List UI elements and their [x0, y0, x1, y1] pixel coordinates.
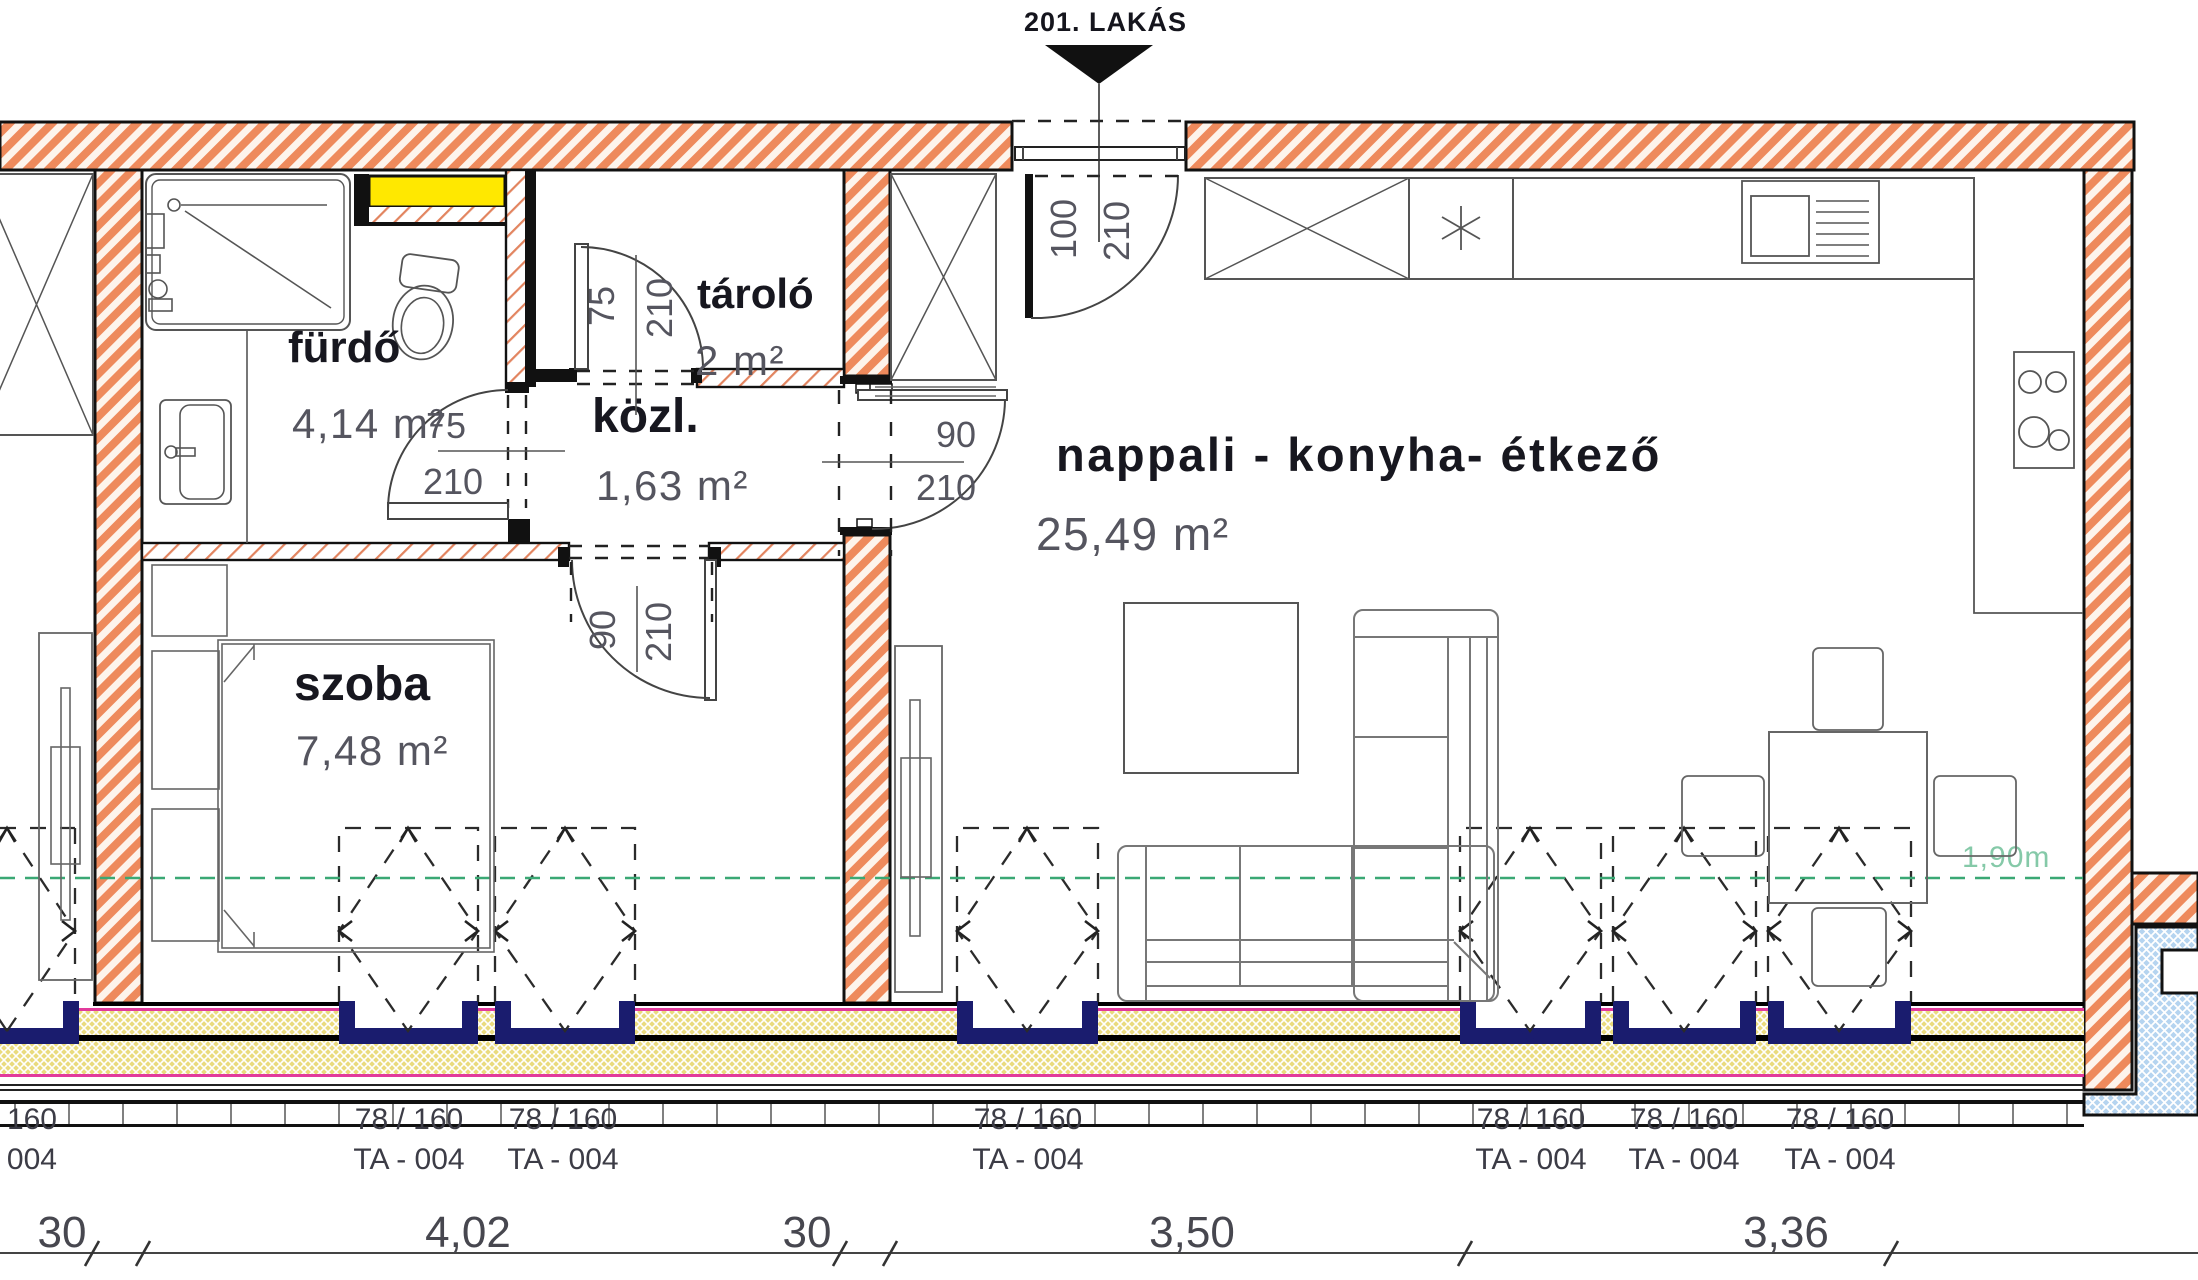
svg-text:4,14 m²: 4,14 m²: [292, 400, 445, 447]
svg-text:TA - 004: TA - 004: [1628, 1143, 1739, 1176]
svg-text:tároló: tároló: [697, 270, 814, 317]
svg-text:210: 210: [916, 467, 976, 508]
svg-text:közl.: közl.: [592, 390, 699, 443]
svg-text:TA - 004: TA - 004: [353, 1143, 464, 1176]
svg-text:210: 210: [638, 602, 679, 662]
svg-text:78 / 160: 78 / 160: [509, 1103, 617, 1136]
svg-text:A - 004: A - 004: [0, 1143, 57, 1176]
svg-text:30: 30: [38, 1208, 87, 1257]
svg-text:90: 90: [936, 414, 976, 455]
svg-text:TA - 004: TA - 004: [972, 1143, 1083, 1176]
svg-text:78 / 160: 78 / 160: [1786, 1103, 1894, 1136]
svg-text:78 / 160: 78 / 160: [1630, 1103, 1738, 1136]
svg-text:78 / 160: 78 / 160: [974, 1103, 1082, 1136]
svg-text:210: 210: [639, 278, 680, 338]
svg-text:1,63 m²: 1,63 m²: [596, 462, 749, 509]
svg-text:1,90m: 1,90m: [1962, 841, 2050, 874]
svg-text:szoba: szoba: [294, 658, 430, 711]
svg-text:75: 75: [426, 405, 466, 446]
svg-text:fürdő: fürdő: [288, 323, 400, 372]
svg-text:100: 100: [1043, 199, 1084, 259]
svg-text:4,02: 4,02: [425, 1208, 511, 1257]
svg-text:2 m²: 2 m²: [695, 337, 785, 384]
svg-text:210: 210: [1096, 201, 1137, 261]
svg-text:TA - 004: TA - 004: [1475, 1143, 1586, 1176]
svg-text:30: 30: [783, 1208, 832, 1257]
svg-text:78 / 160: 78 / 160: [355, 1103, 463, 1136]
svg-text:90: 90: [582, 610, 623, 650]
svg-text:TA - 004: TA - 004: [1784, 1143, 1895, 1176]
svg-text:3,50: 3,50: [1149, 1208, 1235, 1257]
svg-text:TA - 004: TA - 004: [507, 1143, 618, 1176]
svg-text:25,49 m²: 25,49 m²: [1036, 508, 1230, 560]
svg-text:201. LAKÁS: 201. LAKÁS: [1024, 6, 1187, 37]
svg-text:75: 75: [581, 286, 622, 326]
svg-text:78 / 160: 78 / 160: [1477, 1103, 1585, 1136]
svg-text:7,48 m²: 7,48 m²: [296, 727, 449, 774]
svg-text:210: 210: [423, 461, 483, 502]
svg-text:8 / 160: 8 / 160: [0, 1103, 57, 1136]
svg-text:nappali - konyha- étkező: nappali - konyha- étkező: [1056, 428, 1662, 481]
svg-text:3,36: 3,36: [1743, 1208, 1829, 1257]
